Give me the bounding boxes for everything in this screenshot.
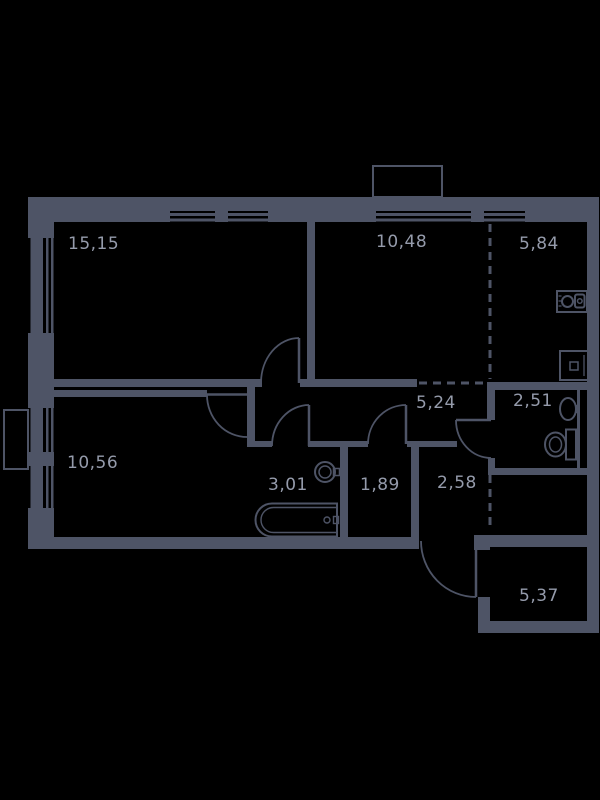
sink-icon (560, 398, 579, 420)
stove-sink-icon (557, 291, 587, 312)
fixtures (256, 291, 589, 537)
room-area-label: 5,37 (519, 588, 559, 605)
door-room5 (456, 420, 491, 458)
window-icon (31, 238, 54, 333)
floor-plan-drawing (0, 0, 600, 800)
door-entry (421, 541, 476, 597)
walls (28, 197, 599, 633)
door-room1 (261, 338, 299, 383)
door-room8 (368, 405, 406, 444)
bathtub-icon (256, 504, 339, 537)
window-icon (228, 197, 268, 222)
room-area-label: 3,01 (268, 477, 308, 494)
fridge-icon (560, 351, 588, 380)
toilet-icon (545, 430, 576, 460)
floor-plan: 15,15 10,48 5,84 5,24 2,51 10,56 3,01 1,… (0, 0, 600, 800)
round-sink-icon (315, 462, 340, 482)
window-icon (31, 466, 54, 508)
room-area-label: 10,56 (67, 455, 118, 472)
room-area-label: 10,48 (376, 234, 427, 251)
room-area-label: 5,84 (519, 236, 559, 253)
window-icon (31, 408, 54, 452)
room-area-label: 5,24 (416, 395, 456, 412)
balcony-left-outline (4, 410, 28, 469)
room-area-label: 2,51 (513, 393, 553, 410)
balcony-top-outline (373, 166, 442, 197)
door-room7 (272, 405, 309, 446)
window-icon (484, 197, 525, 222)
room-area-label: 15,15 (68, 236, 119, 253)
room-area-label: 2,58 (437, 475, 477, 492)
room-area-label: 1,89 (360, 477, 400, 494)
balcony-door-window-icon (376, 197, 471, 222)
doors (207, 338, 491, 597)
window-icon (170, 197, 215, 222)
